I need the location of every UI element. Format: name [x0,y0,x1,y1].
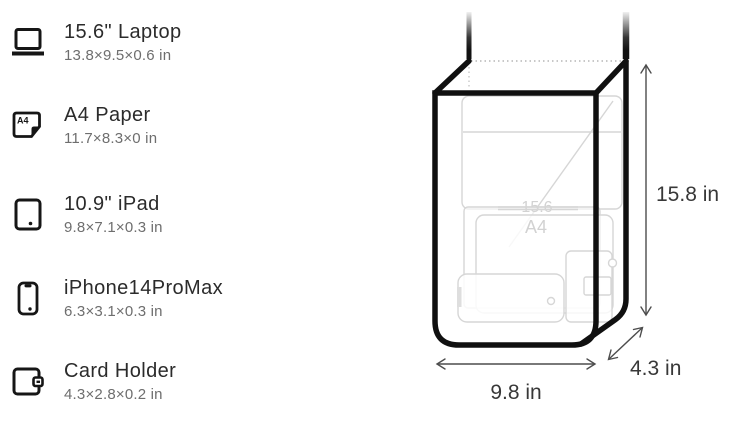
height-dimension-arrow [641,65,651,315]
depth-dimension-arrow [609,328,643,360]
ghost-card-holder [566,251,617,322]
height-dimension-label: 15.8 in [656,183,719,206]
width-dimension-arrow [437,359,595,369]
ghost-iphone [457,274,564,322]
bag-diagram: 15.6 A4 [0,0,750,426]
depth-dimension-label: 4.3 in [630,357,681,380]
bag-top-left-edge [435,61,469,93]
bag-top-right-edge [596,61,626,93]
watermark-a4: A4 [525,217,547,237]
width-dimension-label: 9.8 in [490,381,541,404]
